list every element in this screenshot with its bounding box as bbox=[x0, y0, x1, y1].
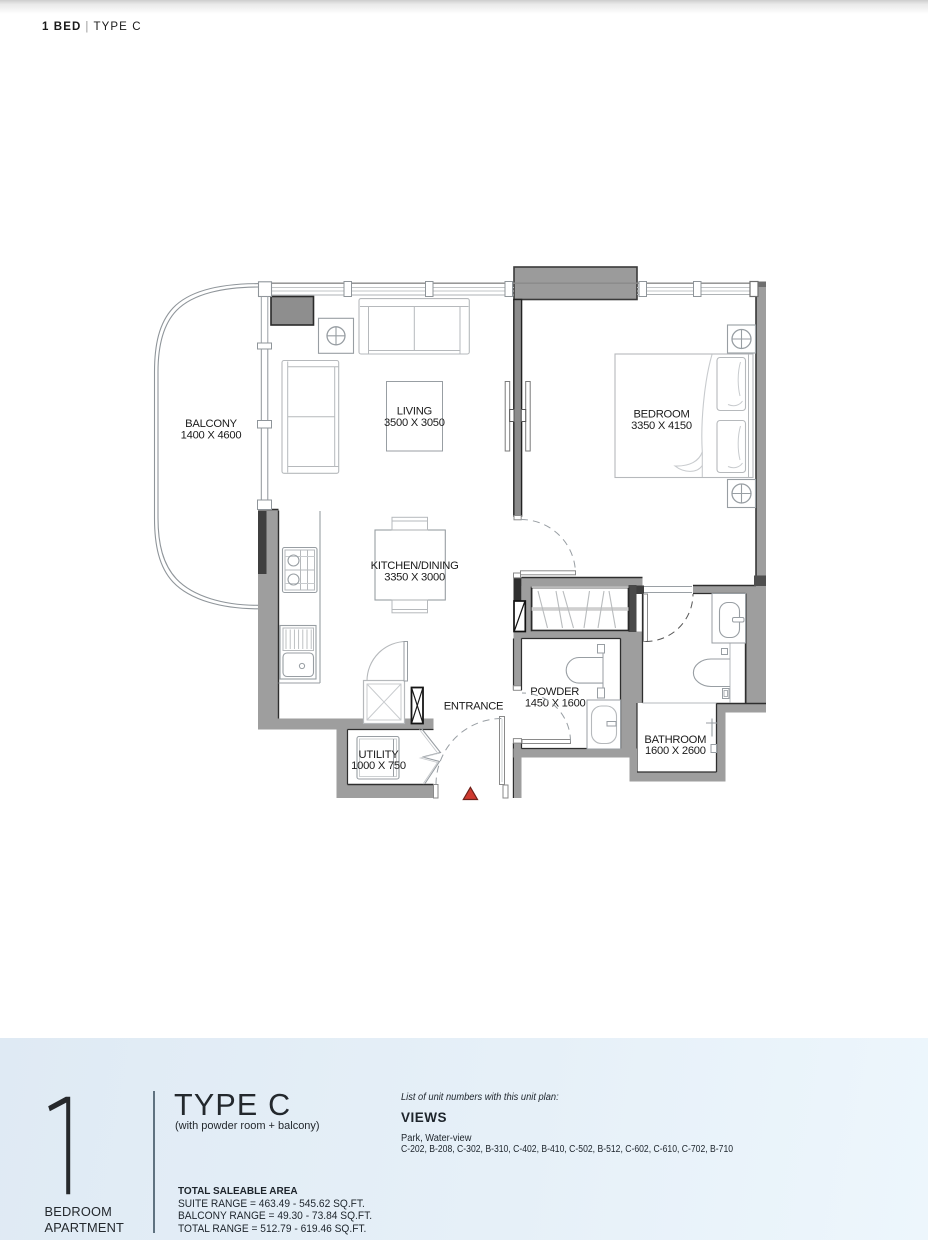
svg-text:1600 X 2600: 1600 X 2600 bbox=[645, 745, 706, 757]
svg-text:1400 X 4600: 1400 X 4600 bbox=[181, 430, 242, 442]
svg-text:1450 X 1600: 1450 X 1600 bbox=[525, 697, 586, 709]
svg-text:ENTRANCE: ENTRANCE bbox=[444, 701, 504, 713]
svg-text:3500 X 3050: 3500 X 3050 bbox=[384, 417, 445, 429]
svg-text:1000 X 750: 1000 X 750 bbox=[351, 760, 406, 772]
svg-text:3350 X 3000: 3350 X 3000 bbox=[384, 572, 445, 584]
svg-text:UTILITY: UTILITY bbox=[359, 749, 400, 761]
svg-text:LIVING: LIVING bbox=[397, 405, 432, 417]
svg-text:3350 X 4150: 3350 X 4150 bbox=[631, 420, 692, 432]
svg-text:BEDROOM: BEDROOM bbox=[633, 409, 689, 421]
svg-text:BALCONY: BALCONY bbox=[185, 418, 238, 430]
svg-text:POWDER: POWDER bbox=[530, 686, 579, 698]
svg-text:KITCHEN/DINING: KITCHEN/DINING bbox=[371, 560, 459, 572]
